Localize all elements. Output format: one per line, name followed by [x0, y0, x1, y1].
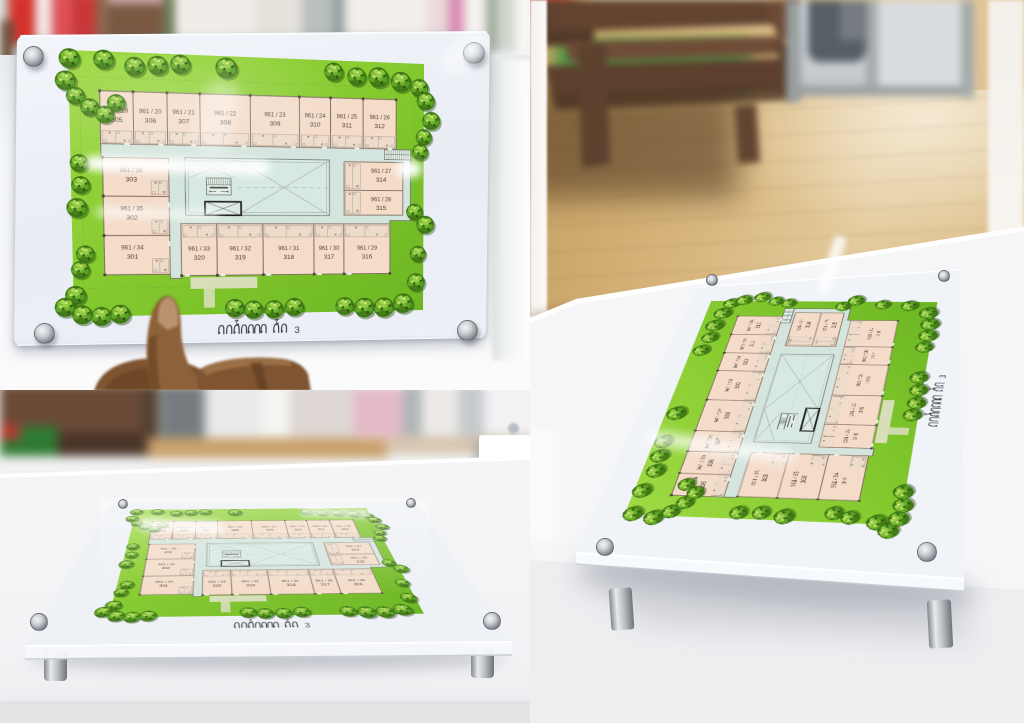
svg-text:320: 320 — [212, 584, 221, 588]
svg-text:311: 311 — [317, 528, 325, 531]
svg-text:303: 303 — [164, 551, 173, 554]
svg-text:961 / 32: 961 / 32 — [241, 579, 259, 583]
svg-text:3: 3 — [937, 374, 948, 378]
svg-text:961 / 33: 961 / 33 — [208, 580, 226, 584]
svg-text:302: 302 — [161, 566, 170, 569]
svg-text:318: 318 — [865, 377, 874, 384]
svg-text:315: 315 — [356, 560, 366, 563]
svg-text:309: 309 — [266, 529, 274, 532]
svg-text:308: 308 — [231, 529, 239, 532]
svg-text:3: 3 — [304, 623, 311, 630]
svg-text:961 / 28: 961 / 28 — [350, 556, 368, 559]
svg-text:318: 318 — [286, 583, 296, 587]
svg-text:961 / 30: 961 / 30 — [315, 579, 334, 583]
svg-text:319: 319 — [858, 406, 867, 413]
svg-text:961 / 35: 961 / 35 — [158, 562, 176, 565]
svg-text:317: 317 — [870, 353, 878, 359]
svg-text:961 / 29: 961 / 29 — [347, 578, 366, 582]
svg-text:319: 319 — [246, 584, 256, 588]
svg-text:961 / 34: 961 / 34 — [155, 580, 174, 584]
svg-text:301: 301 — [159, 584, 169, 588]
svg-text:317: 317 — [320, 583, 330, 587]
svg-text:316: 316 — [875, 331, 883, 337]
svg-text:312: 312 — [341, 528, 350, 531]
svg-text:310: 310 — [294, 528, 303, 531]
svg-text:320: 320 — [852, 433, 861, 441]
svg-text:316: 316 — [353, 583, 364, 587]
svg-text:314: 314 — [350, 548, 360, 551]
svg-text:961 / 31: 961 / 31 — [281, 579, 300, 583]
